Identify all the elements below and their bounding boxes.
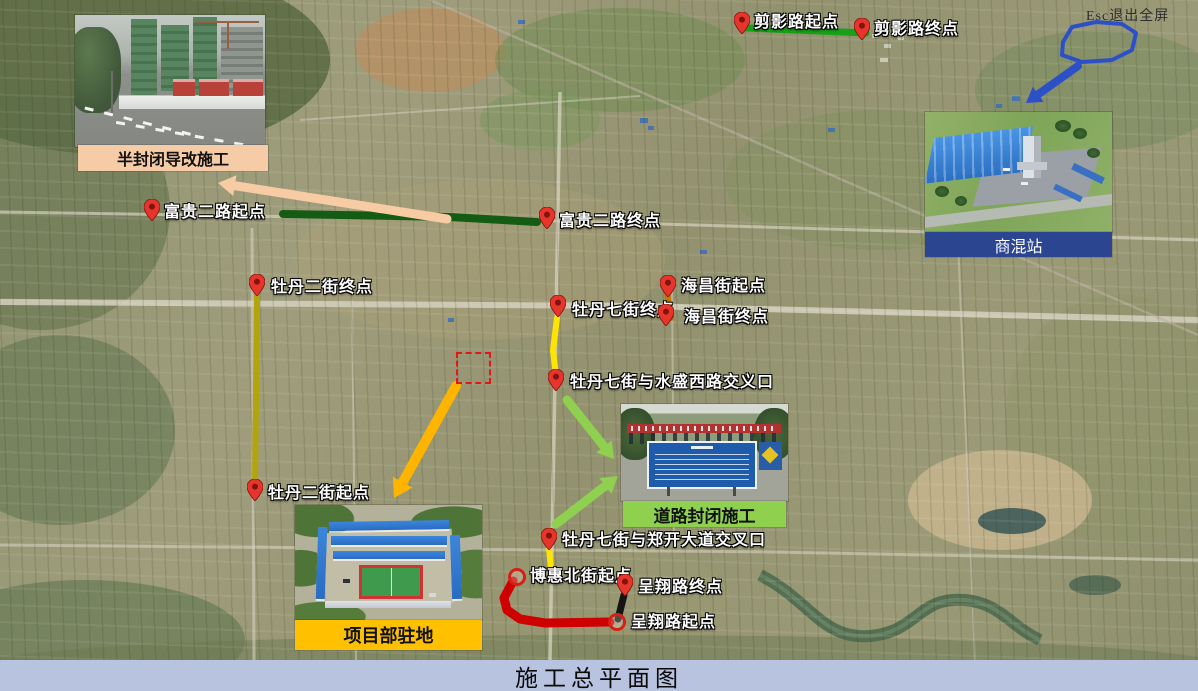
route-剪影路 (747, 28, 866, 33)
arrowhead-camp-pointer (393, 477, 413, 498)
photo-billboard (199, 79, 229, 96)
map-pin-label: 呈翔路终点 (638, 579, 723, 597)
arrow-camp-pointer (403, 386, 456, 482)
arrow-half-closure-pointer (235, 186, 447, 219)
photo-board-leg (733, 487, 736, 496)
photo-billboard (173, 79, 195, 96)
map-pin-label: 牡丹七街终点 (572, 302, 674, 320)
route-海昌街 (667, 292, 671, 318)
mixing-station-image (925, 112, 1112, 232)
map-pin-label: 海昌街终点 (684, 309, 769, 327)
map-pin (144, 199, 160, 221)
road-closure-label-text: 道路封闭施工 (654, 502, 756, 527)
map-pin-label: 剪影路起点 (754, 14, 839, 32)
map-pin (247, 479, 263, 501)
render-tree (1055, 120, 1071, 132)
render-building (333, 551, 445, 559)
half-closure-label: 半封闭导改施工 (78, 145, 268, 171)
title-bar: 施工总平面图 (0, 660, 1198, 691)
route-牡丹二街 (255, 297, 257, 487)
map-pin (854, 18, 870, 40)
render-tree (1073, 128, 1087, 139)
map-ring-marker (508, 568, 526, 586)
road-closure-photo (621, 404, 788, 501)
fullscreen-hint: Esc退出全屏 (1086, 5, 1169, 25)
photo-billboard (233, 79, 263, 96)
map-pin (617, 574, 633, 596)
photo-board-leg (667, 487, 670, 496)
arrow-closure-pointer-1 (567, 400, 604, 446)
project-camp-label: 项目部驻地 (295, 620, 482, 650)
map-pin-label: 富贵二路终点 (559, 213, 661, 231)
mixing-station-label-text: 商混站 (994, 233, 1042, 257)
render-tree (1087, 148, 1100, 158)
map-pin-label: 海昌街起点 (681, 278, 766, 296)
street-construction-photo (75, 15, 265, 147)
arrow-closure-pointer-2 (556, 486, 605, 524)
map-pin (249, 274, 265, 296)
construction-plan-slide: 半封闭导改施工 道路封闭施工 项目部驻地 (0, 0, 1198, 691)
page-title: 施工总平面图 (515, 659, 683, 691)
photo-trees (75, 27, 121, 113)
map-pin-label: 博惠北街起点 (530, 568, 632, 586)
route-牡丹七街 (553, 318, 557, 377)
render-car (429, 593, 436, 597)
mixing-station-label: 商混站 (925, 232, 1112, 257)
map-ring-marker (608, 613, 626, 631)
arrowhead-closure-pointer-2 (599, 476, 618, 494)
photo-building (131, 19, 157, 95)
map-pin-label: 牡丹二街终点 (271, 279, 373, 297)
photo-crane (227, 21, 229, 49)
photo-pole (111, 71, 113, 113)
half-closure-label-text: 半封闭导改施工 (117, 146, 229, 170)
map-pin-label: 牡丹二街起点 (268, 485, 370, 503)
route-牡丹七街南段 (549, 548, 551, 569)
map-pin (548, 369, 564, 391)
render-tree (935, 186, 949, 197)
map-pin-label: 呈翔路起点 (631, 614, 716, 632)
mixing-station-region-loop (1062, 22, 1136, 62)
photo-warning-sign (759, 442, 782, 470)
render-basketball-court (359, 565, 423, 599)
map-pin (658, 304, 674, 326)
render-tree (955, 196, 967, 206)
map-pin (541, 528, 557, 550)
arrowhead-half-closure-pointer (218, 175, 236, 196)
project-camp-image (295, 505, 482, 620)
arrow-station-pointer (1038, 66, 1078, 94)
photo-fence (119, 95, 265, 109)
arrowhead-station-pointer (1026, 87, 1044, 103)
map-pin (539, 207, 555, 229)
render-building (331, 536, 447, 545)
map-pin (734, 12, 750, 34)
map-pin-label: 富贵二路起点 (164, 204, 266, 222)
arrowhead-closure-pointer-1 (596, 440, 614, 459)
render-wall (325, 601, 451, 608)
map-pin-label: 剪影路终点 (874, 21, 959, 39)
map-pin-label: 牡丹七街与郑开大道交叉口 (562, 532, 766, 550)
render-batching-tower (1023, 136, 1041, 178)
photo-banner (627, 424, 781, 433)
map-pin (660, 275, 676, 297)
render-car (343, 579, 350, 583)
render-truck (1021, 182, 1028, 185)
photo-notice-board (647, 441, 757, 489)
dashed-highlight-box (456, 352, 491, 384)
map-pin (550, 295, 566, 317)
render-truck (1003, 168, 1010, 171)
project-camp-label-text: 项目部驻地 (344, 622, 434, 648)
photo-lane-marking (116, 121, 254, 147)
road-closure-label: 道路封闭施工 (623, 501, 786, 527)
route-博惠北街 (504, 581, 610, 623)
map-pin-label: 牡丹七街与水盛西路交义口 (570, 374, 774, 392)
route-富贵二路 (283, 214, 537, 222)
route-呈翔路 (618, 595, 624, 619)
